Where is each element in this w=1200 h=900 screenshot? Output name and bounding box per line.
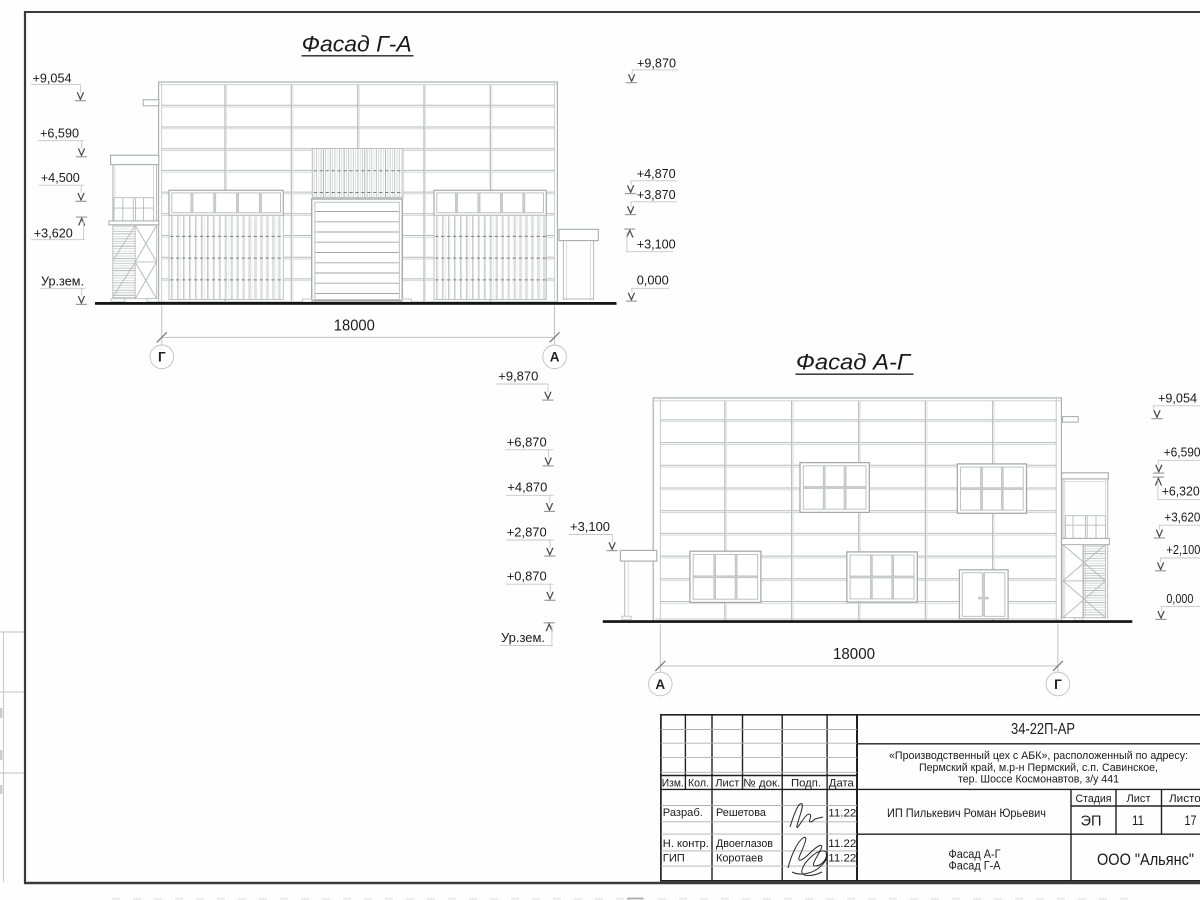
svg-text:Решетова: Решетова [716,807,767,819]
svg-text:+6,320: +6,320 [1162,483,1200,498]
svg-text:11.22: 11.22 [828,838,856,850]
svg-text:0,000: 0,000 [1166,591,1193,606]
svg-text:Двоеглазов: Двоеглазов [716,838,773,850]
svg-text:+3,100: +3,100 [570,519,610,534]
svg-text:18000: 18000 [334,317,375,334]
svg-text:тер. Шоссе Космонавтов, з/у 44: тер. Шоссе Космонавтов, з/у 441 [958,774,1119,786]
svg-text:17: 17 [1185,812,1197,828]
svg-text:ГИП: ГИП [663,852,685,864]
svg-text:+9,054: +9,054 [1158,390,1197,405]
svg-text:Разраб.: Разраб. [663,807,703,819]
svg-text:Лист: Лист [1127,793,1151,805]
svg-text:Изм.: Изм. [662,777,684,789]
svg-text:Листов: Листов [1169,793,1200,805]
svg-text:ЭП: ЭП [1081,813,1102,830]
svg-text:+3,100: +3,100 [637,236,676,251]
svg-text:ИП Пилькевич Роман Юрьевич: ИП Пилькевич Роман Юрьевич [887,808,1046,820]
svg-text:+3,870: +3,870 [637,187,676,202]
svg-text:Лист: Лист [715,777,739,789]
svg-text:+9,870: +9,870 [637,55,676,70]
svg-text:11: 11 [1132,812,1144,828]
svg-text:«Производственный цех с АБК»,: «Производственный цех с АБК», расположен… [889,750,1188,762]
svg-text:+9,870: +9,870 [498,369,538,384]
svg-text:Подп.: Подп. [791,777,821,789]
svg-text:Г: Г [1054,677,1062,692]
svg-text:0,000: 0,000 [637,273,669,288]
svg-text:34-22П-АР: 34-22П-АР [1011,721,1075,738]
svg-text:Ур.зем.: Ур.зем. [41,273,84,288]
svg-text:Дата: Дата [829,777,855,789]
svg-text:+2,870: +2,870 [507,524,547,539]
svg-text:18000: 18000 [833,646,875,663]
svg-text:+4,500: +4,500 [41,170,80,185]
svg-text:+6,590: +6,590 [1164,444,1200,459]
svg-text:Г: Г [158,350,166,365]
svg-text:+3,620: +3,620 [34,226,73,241]
svg-text:+6,590: +6,590 [40,126,79,141]
svg-text:+2,100: +2,100 [1166,542,1200,557]
svg-text:+0,870: +0,870 [507,569,547,584]
svg-text:Н. контр.: Н. контр. [663,838,709,850]
svg-text:Стадия: Стадия [1076,793,1112,805]
svg-text:+3,620: +3,620 [1164,509,1200,524]
svg-text:+6,870: +6,870 [507,434,547,449]
svg-text:Фасад Г-А: Фасад Г-А [302,31,412,56]
svg-text:+4,870: +4,870 [507,480,547,495]
svg-text:Фасад А-Г: Фасад А-Г [796,350,912,375]
svg-text:Фасад А-Г: Фасад А-Г [949,849,1002,861]
svg-text:Пермский край, м.р-н Пермский,: Пермский край, м.р-н Пермский, с.п. Сави… [919,762,1158,774]
svg-text:ООО "Альянс": ООО "Альянс" [1097,851,1194,869]
svg-text:+9,054: +9,054 [33,70,72,85]
svg-text:Коротаев: Коротаев [716,852,763,864]
svg-text:11.22: 11.22 [828,853,856,865]
svg-text:Ур.зем.: Ур.зем. [501,630,545,645]
svg-text:11.22: 11.22 [828,807,856,819]
svg-text:+4,870: +4,870 [637,166,676,181]
svg-text:Фасад Г-А: Фасад Г-А [949,861,1001,873]
svg-text:А: А [655,677,665,692]
svg-text:№ док.: № док. [743,777,780,789]
svg-text:Кол.: Кол. [688,777,709,789]
svg-text:А: А [550,350,560,365]
